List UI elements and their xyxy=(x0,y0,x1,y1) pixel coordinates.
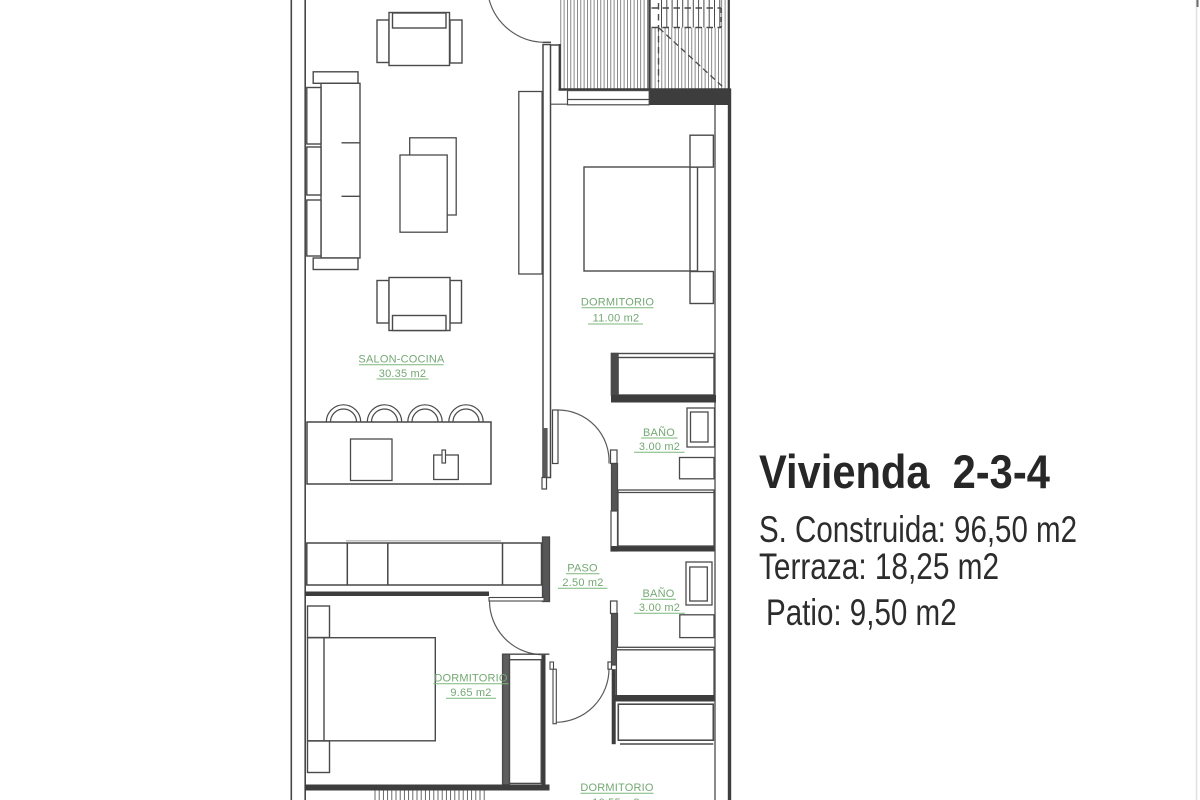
svg-text:2.50 m2: 2.50 m2 xyxy=(562,577,603,589)
svg-text:BAÑO: BAÑO xyxy=(643,587,675,600)
svg-text:BAÑO: BAÑO xyxy=(643,426,675,439)
svg-text:9.65 m2: 9.65 m2 xyxy=(450,687,491,699)
svg-text:DORMITORIO: DORMITORIO xyxy=(434,673,508,685)
svg-text:DORMITORIO: DORMITORIO xyxy=(580,782,654,794)
svg-text:30.35 m2: 30.35 m2 xyxy=(379,368,426,380)
svg-text:SALON-COCINA: SALON-COCINA xyxy=(358,354,445,366)
svg-text:3.00 m2: 3.00 m2 xyxy=(639,441,680,453)
svg-text:11.00 m2: 11.00 m2 xyxy=(593,313,640,325)
svg-text:PASO: PASO xyxy=(567,563,598,575)
svg-text:3.00 m2: 3.00 m2 xyxy=(639,602,680,614)
svg-text:DORMITORIO: DORMITORIO xyxy=(581,297,655,309)
